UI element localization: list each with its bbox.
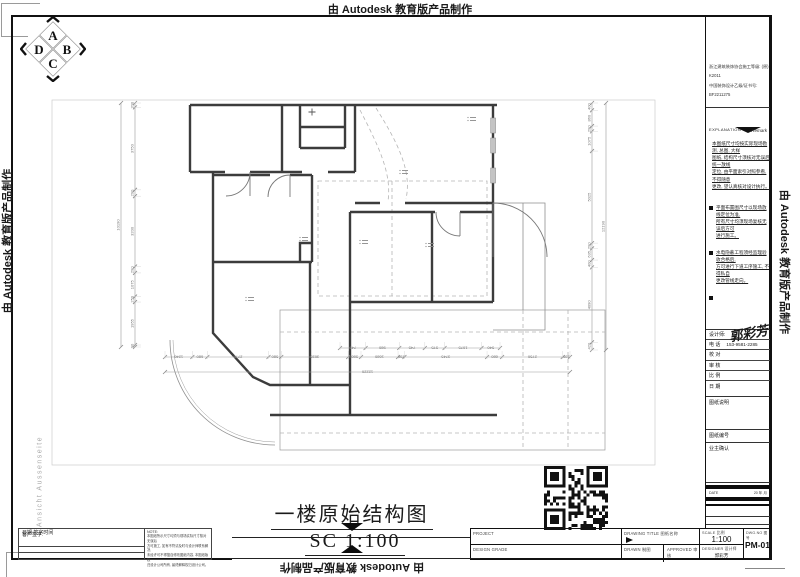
svg-text:290: 290 [397, 355, 404, 360]
certificate-box: 浙江建筑装饰协会施工等级: (原) K2011 中国装饰设计乙级/证书号: BF… [706, 15, 770, 108]
explanation-bullet-1: 平面布置图尺寸以现场放线定位为准, 所有尺寸均须现场复核无误后方可 进行施工。 [716, 204, 770, 240]
svg-text:250: 250 [130, 295, 135, 302]
filled-rows: DATE 20 年 月 [706, 485, 770, 516]
scale-field-label: 比 例 [709, 372, 720, 379]
scale-value: 1:100 [700, 535, 743, 544]
svg-text:540: 540 [487, 346, 494, 351]
explanation-label-cn: Remark [751, 128, 767, 133]
client-sign-table: 客户签字: 日期 签字时间 NOTE: 本图纸所示尺寸均须与现场实际尺寸核对无误… [18, 528, 212, 560]
svg-text:290: 290 [587, 242, 592, 249]
qr-code [544, 466, 608, 530]
drawing-notes-label: 图纸说明 [709, 399, 729, 406]
autodesk-banner-top: 由 Autodesk 教育版产品制作 [280, 1, 520, 17]
svg-text:12220: 12220 [361, 370, 373, 375]
dwg-no-label: DWG.NO 图号 [746, 531, 771, 541]
scale-cell: SCALE 比例 1:100 DESIGNER 设计师 郭彩芳 [699, 529, 743, 559]
bullet-square-icon [709, 251, 713, 255]
svg-text:400: 400 [587, 103, 592, 110]
svg-text:745: 745 [408, 346, 415, 351]
svg-text:580: 580 [271, 355, 278, 360]
fold-mark-down-icon [341, 523, 363, 531]
certificate-line-2: 中国装饰设计乙级/证书号: BF2211275 [709, 81, 770, 99]
svg-text:5025: 5025 [587, 192, 592, 202]
drawn-label: DRAWN 制图 [624, 547, 651, 553]
svg-text:12190: 12190 [601, 220, 606, 232]
approved-label: APPROVED 审核 [663, 545, 699, 562]
dashed-beam-lines [280, 108, 605, 450]
compass-logo: A D B C [20, 16, 86, 82]
filled-bar [706, 504, 770, 507]
svg-text:1075: 1075 [130, 280, 135, 290]
drawing-number-box: 图纸编号 [706, 430, 770, 443]
svg-text:680: 680 [490, 355, 497, 360]
svg-text:2770: 2770 [233, 355, 243, 360]
check-label: 校 对 [709, 351, 720, 358]
svg-text:3035: 3035 [310, 355, 320, 360]
svg-text:10190: 10190 [116, 219, 121, 231]
svg-text:680: 680 [196, 355, 203, 360]
walls [190, 105, 497, 415]
svg-text:330: 330 [562, 355, 569, 360]
svg-text:980: 980 [378, 346, 385, 351]
drawing-title-cell: DRAWING TITLE 图纸名称 DRAWN 制图 APPROVED 审核 [621, 529, 699, 559]
fold-line [232, 537, 470, 538]
filled-bar [706, 497, 770, 501]
svg-text:3750: 3750 [130, 143, 135, 153]
drawing-number-label: 图纸编号 [709, 432, 729, 439]
svg-text:290: 290 [130, 189, 135, 196]
explanation-bullet-2: 水电隐蔽工程须经监理验收合格后, 方可进行下道工序施工, 不得私自 更改管线走向… [716, 249, 770, 285]
svg-text:1680: 1680 [374, 355, 384, 360]
logo-letter-d: D [34, 42, 43, 57]
door-swings [226, 172, 547, 257]
svg-text:3745: 3745 [441, 355, 451, 360]
autodesk-banner-left: 由 Autodesk 教育版产品制作 [0, 141, 13, 341]
svg-text:745: 745 [349, 346, 356, 351]
note-body: 本图纸所示尺寸均须与现场实际尺寸核对无误后 方可施工, 如有不符请及时与设计师联… [147, 534, 209, 567]
client-date-label: 日期 签字时间 [22, 529, 53, 536]
designer-fields: 设计师: 郭彩芳 电 话 153-9581-2285 校 对 审 核 比 例 日… [706, 330, 770, 397]
window-hatches [491, 118, 496, 183]
autodesk-banner-right: 由 Autodesk 教育版产品制作 [779, 162, 793, 362]
svg-text:635: 635 [587, 250, 592, 257]
review-label: 审 核 [709, 362, 720, 369]
svg-text:1075: 1075 [587, 136, 592, 146]
phone-label: 电 话 [709, 341, 720, 348]
svg-text:860: 860 [587, 114, 592, 121]
title-block: PROJECT DESIGN GRADE DRAWING TITLE 图纸名称 … [470, 528, 772, 560]
svg-text:290: 290 [587, 125, 592, 132]
porch-and-terrace [170, 203, 605, 450]
explanation-box: EXPLANATION Remark 本图纸尺寸均按实际现场勘测, 总图, 大样… [706, 108, 770, 330]
fold-mark-up-icon [341, 545, 363, 553]
svg-text:200: 200 [130, 101, 135, 108]
svg-text:290: 290 [130, 266, 135, 273]
drawing-sheet: 由 Autodesk 教育版产品制作 由 Autodesk 教育版产品制作 由 … [0, 0, 800, 577]
drawing-title-arrow-icon [626, 537, 633, 543]
sidebar: 浙江建筑装饰协会施工等级: (原) K2011 中国装饰设计乙级/证书号: BF… [705, 15, 770, 528]
date-row-label: DATE [709, 491, 718, 495]
designer-tb-value: 郭彩芳 [700, 553, 743, 559]
designer-label: 设计师: [709, 331, 725, 338]
owner-confirm-label: 业主确认 [709, 445, 729, 452]
logo-letter-c: C [48, 56, 57, 71]
svg-text:420: 420 [587, 342, 592, 349]
drawing-title-label: DRAWING TITLE 图纸名称 [624, 531, 678, 537]
svg-text:2750: 2750 [527, 355, 537, 360]
flue-cross [309, 109, 316, 116]
dwg-no-cell: DWG.NO 图号 PM-01 [743, 529, 771, 559]
logo-letter-b: B [63, 42, 72, 57]
plan-boundary [52, 100, 655, 465]
autodesk-banner-bottom: 由 Autodesk 教育版产品制作 [252, 560, 452, 576]
logo-letter-a: A [48, 28, 58, 43]
phone-value: 153-9581-2285 [726, 342, 757, 347]
explanation-intro: 本图纸尺寸均按实际现场勘测, 总图, 大样 图纸, 结构尺寸须核对无误后统一放线… [712, 140, 770, 190]
room-level-tags [245, 117, 476, 301]
svg-text:4090: 4090 [587, 300, 592, 310]
svg-text:3200: 3200 [130, 226, 135, 236]
svg-text:1240: 1240 [173, 355, 183, 360]
drawing-notes-box: 图纸说明 [706, 397, 770, 430]
floor-plan: 2003750290320029010752501955901019040086… [40, 85, 680, 475]
svg-text:400: 400 [587, 260, 592, 267]
owner-confirm-box: 业主确认 [706, 443, 770, 483]
svg-text:580: 580 [350, 355, 357, 360]
corner-tick-line [745, 568, 785, 569]
svg-text:575: 575 [431, 346, 438, 351]
date-field-label: 日 期 [709, 383, 720, 390]
bullet-square-icon [709, 296, 713, 300]
svg-text:90: 90 [130, 343, 135, 348]
certificate-line-1: 浙江建筑装饰协会施工等级: (原) K2011 [709, 62, 770, 80]
designer-tb-label: DESIGNER 设计师 [702, 547, 737, 552]
svg-text:1075: 1075 [458, 346, 468, 351]
bullet-square-icon [709, 206, 713, 210]
dwg-no-value: PM-01 [744, 540, 771, 550]
project-cell: PROJECT DESIGN GRADE [471, 529, 621, 559]
svg-text:1955: 1955 [130, 318, 135, 328]
date-row-value: 20 年 月 [754, 491, 767, 496]
